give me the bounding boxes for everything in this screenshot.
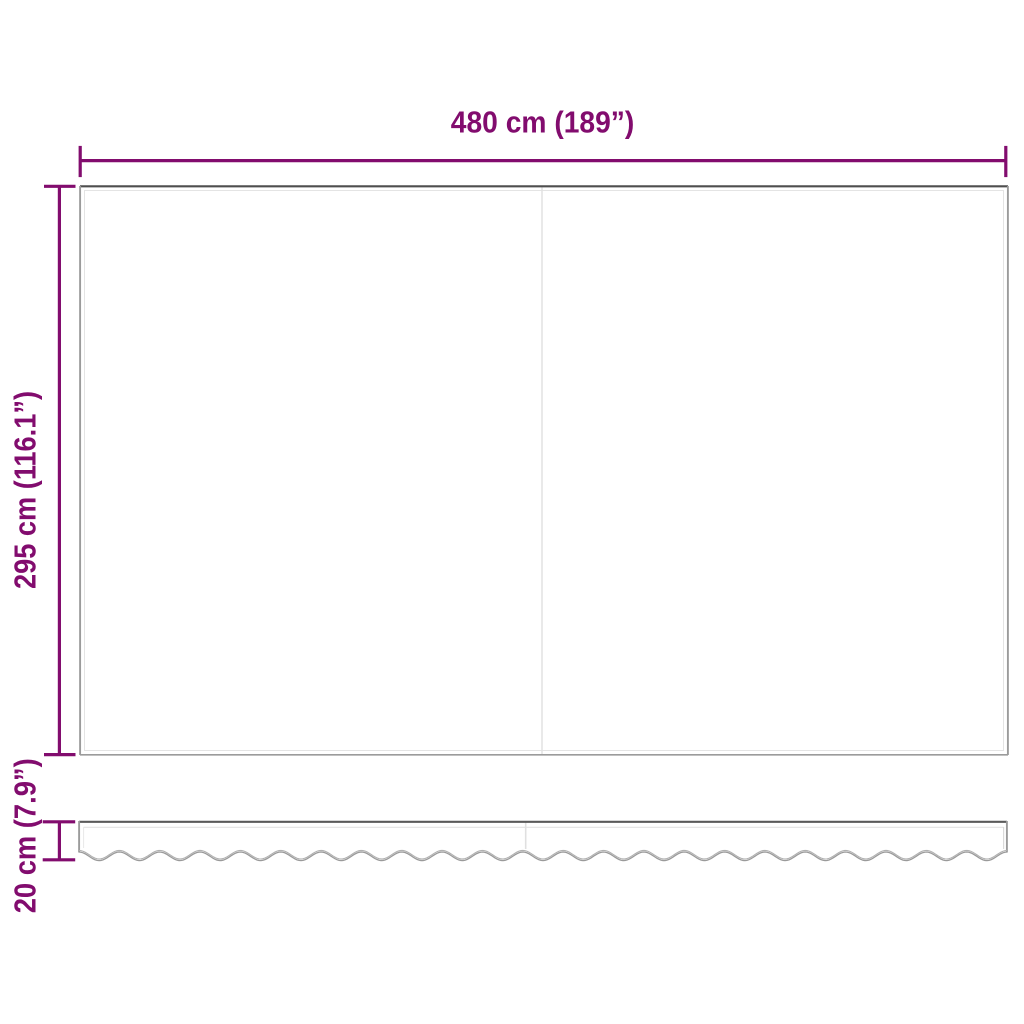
svg-text:295 cm (116.1”): 295 cm (116.1”) — [7, 391, 42, 589]
svg-text:480 cm (189”): 480 cm (189”) — [451, 105, 635, 140]
svg-text:20 cm (7.9”): 20 cm (7.9”) — [7, 758, 42, 913]
